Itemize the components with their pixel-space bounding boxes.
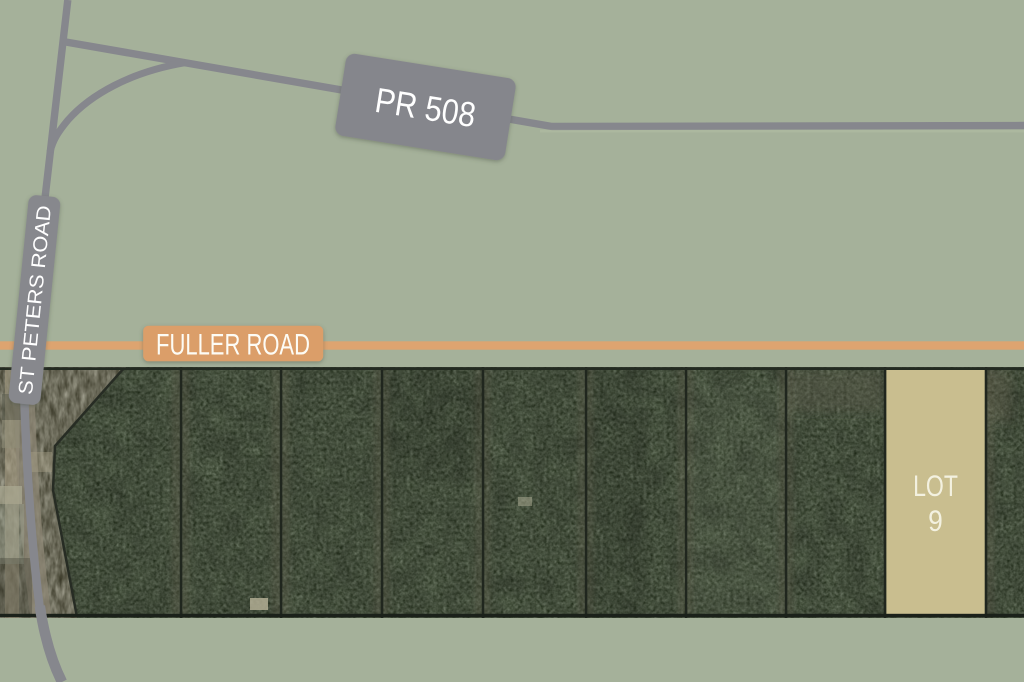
svg-text:LOT: LOT xyxy=(913,468,958,502)
svg-text:FULLER ROAD: FULLER ROAD xyxy=(156,328,310,361)
svg-text:9: 9 xyxy=(928,503,943,537)
